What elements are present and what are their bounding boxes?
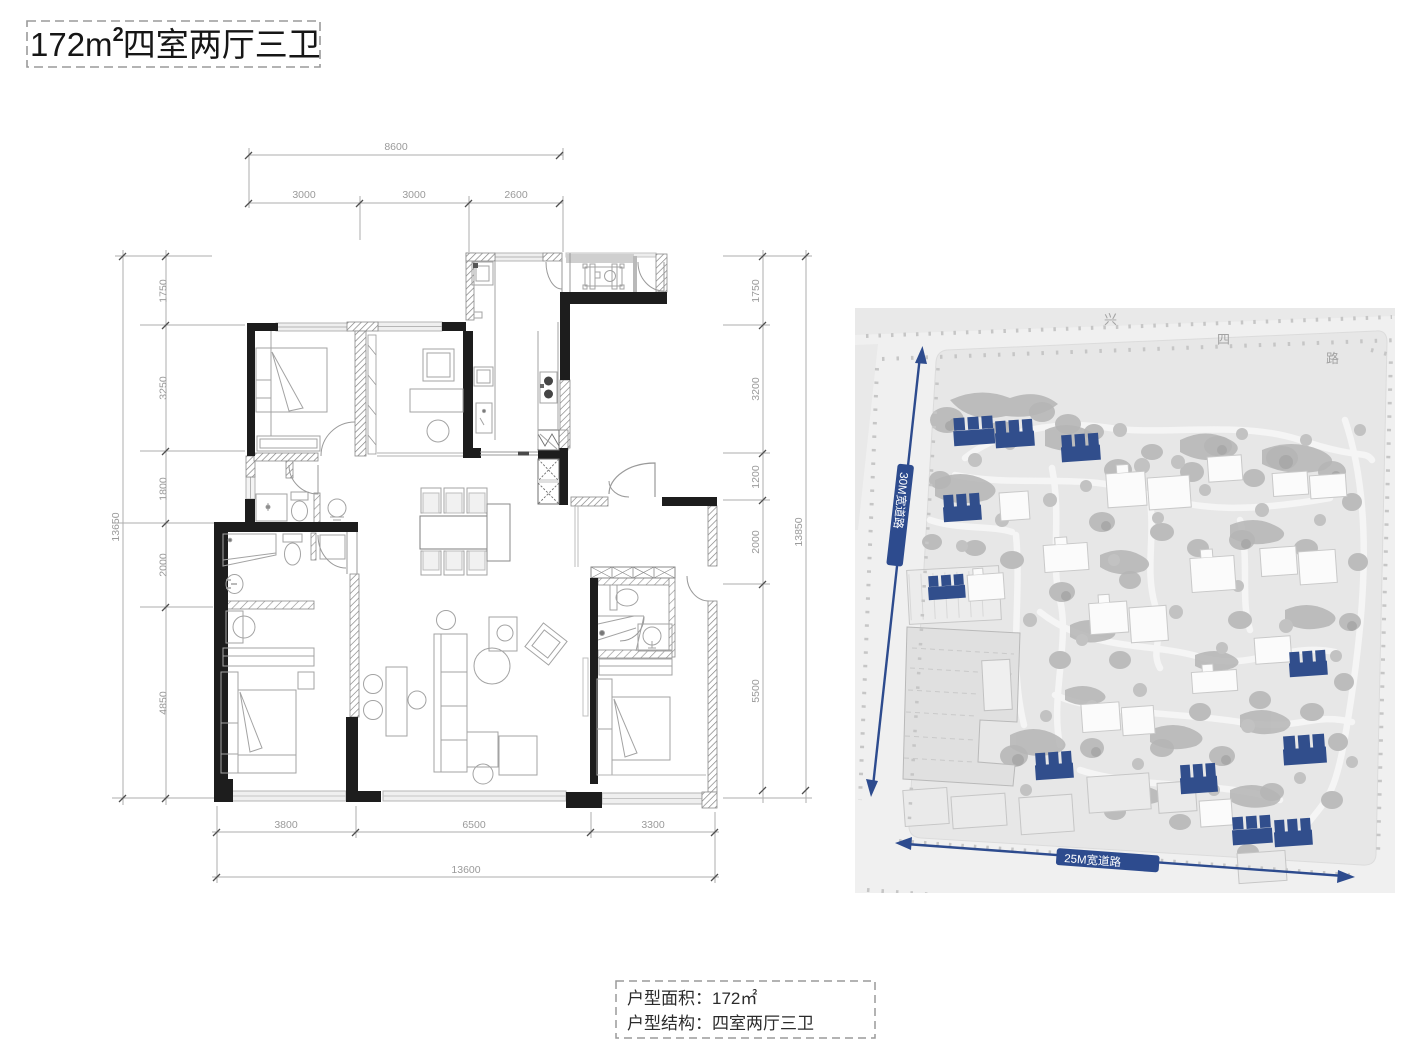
svg-text:1750: 1750	[750, 279, 762, 303]
svg-text:8600: 8600	[384, 141, 408, 153]
svg-text:户型结构：四室两厅三卫: 户型结构：四室两厅三卫	[627, 1014, 814, 1033]
svg-text:1800: 1800	[158, 477, 170, 501]
svg-text:1200: 1200	[750, 465, 762, 489]
svg-text:3000: 3000	[402, 189, 426, 201]
svg-text:3300: 3300	[641, 819, 665, 831]
svg-text:3200: 3200	[750, 377, 762, 401]
svg-text:5500: 5500	[750, 679, 762, 703]
svg-text:13650: 13650	[110, 512, 122, 541]
svg-text:3800: 3800	[274, 819, 298, 831]
svg-text:3000: 3000	[292, 189, 316, 201]
svg-text:路: 路	[1326, 351, 1339, 366]
svg-text:2000: 2000	[158, 553, 170, 577]
svg-text:172m2四室两厅三卫: 172m2四室两厅三卫	[30, 24, 321, 63]
svg-text:1750: 1750	[158, 279, 170, 303]
svg-text:2000: 2000	[750, 530, 762, 554]
svg-text:4850: 4850	[158, 691, 170, 715]
svg-text:2600: 2600	[504, 189, 528, 201]
svg-text:3250: 3250	[158, 376, 170, 400]
svg-text:户型面积：172㎡: 户型面积：172㎡	[627, 989, 757, 1008]
svg-text:四: 四	[1217, 332, 1230, 347]
svg-text:6500: 6500	[462, 819, 486, 831]
svg-text:13850: 13850	[793, 517, 805, 546]
svg-text:兴: 兴	[1104, 312, 1117, 327]
svg-text:13600: 13600	[451, 864, 480, 876]
